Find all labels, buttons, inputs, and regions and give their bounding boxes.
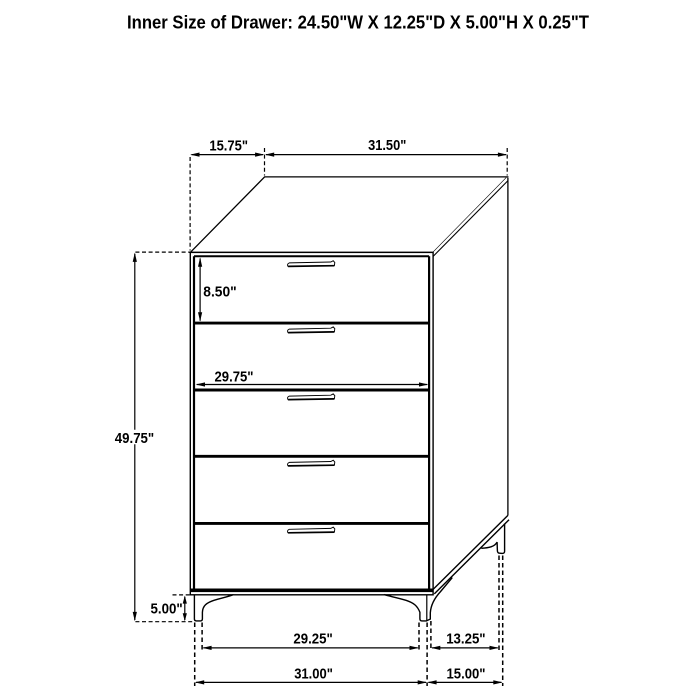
svg-text:8.50": 8.50" bbox=[203, 284, 236, 300]
svg-text:15.75": 15.75" bbox=[209, 139, 248, 155]
svg-text:13.25": 13.25" bbox=[446, 632, 485, 648]
svg-text:31.00": 31.00" bbox=[294, 667, 333, 683]
svg-text:29.25": 29.25" bbox=[293, 632, 332, 648]
svg-text:15.00": 15.00" bbox=[447, 667, 486, 683]
svg-text:49.75": 49.75" bbox=[115, 431, 154, 447]
svg-text:29.75": 29.75" bbox=[215, 369, 254, 385]
svg-text:31.50": 31.50" bbox=[368, 138, 406, 154]
svg-text:5.00": 5.00" bbox=[151, 601, 183, 617]
svg-text:Inner Size of Drawer: 24.50"W: Inner Size of Drawer: 24.50"W X 12.25"D … bbox=[127, 13, 589, 33]
